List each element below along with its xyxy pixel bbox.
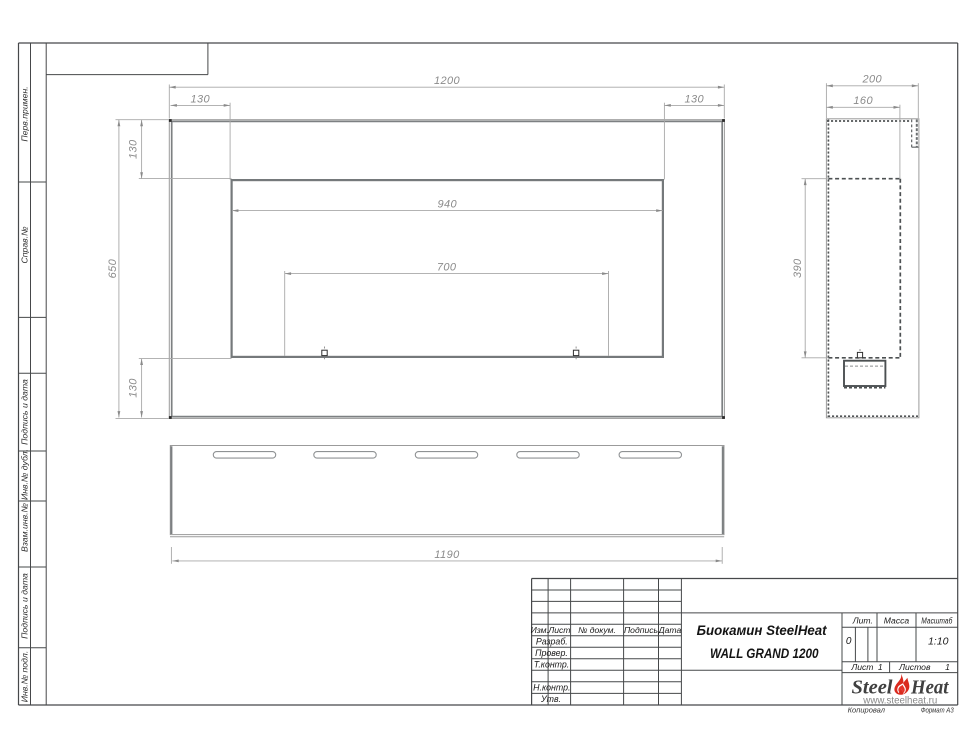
svg-text:Масштаб: Масштаб — [921, 615, 953, 625]
svg-text:1200: 1200 — [434, 75, 461, 87]
svg-text:130: 130 — [128, 139, 140, 159]
svg-text:Подпись и дата: Подпись и дата — [20, 573, 30, 639]
svg-text:Формат А3: Формат А3 — [921, 705, 955, 714]
svg-text:390: 390 — [792, 258, 804, 278]
svg-text:650: 650 — [107, 258, 119, 278]
svg-text:200: 200 — [862, 74, 883, 86]
svg-text:940: 940 — [438, 199, 458, 211]
svg-text:160: 160 — [853, 95, 873, 107]
svg-text:WALL GRAND 1200: WALL GRAND 1200 — [710, 646, 819, 662]
svg-text:1: 1 — [878, 662, 883, 672]
svg-text:1:10: 1:10 — [928, 636, 949, 648]
svg-text:700: 700 — [437, 262, 457, 274]
svg-text:Разраб.: Разраб. — [536, 637, 568, 647]
svg-text:Н.контр.: Н.контр. — [533, 683, 570, 693]
svg-text:Подпись: Подпись — [624, 625, 659, 635]
svg-text:Утв.: Утв. — [540, 694, 561, 704]
svg-text:№ докум.: № докум. — [578, 625, 616, 635]
svg-text:Лист: Лист — [850, 662, 873, 672]
svg-text:0: 0 — [846, 636, 852, 647]
svg-text:Инв.№ подл.: Инв.№ подл. — [20, 651, 30, 703]
svg-text:Перв.примен.: Перв.примен. — [20, 86, 30, 141]
svg-text:130: 130 — [191, 93, 211, 105]
svg-text:1: 1 — [945, 662, 950, 672]
svg-text:Провер.: Провер. — [535, 648, 568, 658]
svg-text:Инв.№ дубл.: Инв.№ дубл. — [20, 449, 30, 500]
svg-text:130: 130 — [685, 93, 705, 105]
svg-text:Листов: Листов — [898, 662, 931, 672]
svg-text:1190: 1190 — [434, 549, 460, 561]
svg-text:Дата: Дата — [658, 625, 682, 635]
svg-text:Справ.№: Справ.№ — [20, 226, 30, 263]
svg-text:Масса: Масса — [884, 615, 910, 625]
svg-text:Лист: Лист — [547, 625, 570, 635]
svg-text:Биокамин SteelHeat: Биокамин SteelHeat — [697, 623, 828, 639]
svg-text:130: 130 — [128, 378, 140, 398]
svg-text:Подпись и дата: Подпись и дата — [20, 379, 30, 445]
svg-text:Взам.инв.№: Взам.инв.№ — [20, 503, 30, 552]
svg-text:Т.контр.: Т.контр. — [534, 660, 570, 670]
svg-text:Копировал: Копировал — [848, 705, 886, 714]
svg-text:Изм.: Изм. — [531, 625, 549, 635]
svg-text:Лит.: Лит. — [852, 615, 873, 625]
